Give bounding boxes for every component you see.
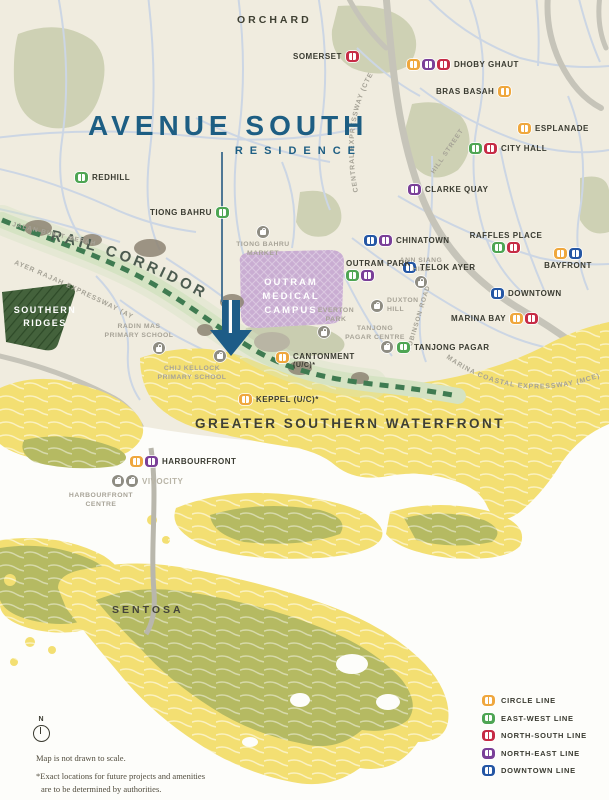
map-notes: Map is not drawn to scale. *Exact locati… (36, 752, 205, 795)
north-east-line-icon (422, 59, 435, 70)
north-south-line-icon (507, 242, 520, 253)
poi-label-line1: DUXTON (387, 297, 419, 306)
north-south-line-icon (484, 143, 497, 154)
legend-item-circle-line: CIRCLE LINE (482, 695, 587, 706)
legend-item-north-south-line: NORTH-SOUTH LINE (482, 730, 587, 741)
note-disclaimer-line2: are to be determined by authorities. (41, 783, 205, 796)
station-tiong-bahru: TIONG BAHRU (150, 207, 229, 218)
station-note: (U/C)* (293, 362, 355, 370)
poi-label-line2: PARK (326, 315, 347, 324)
poi-label-line1: TIONG BAHRU (236, 240, 289, 249)
station-label: CANTONMENT (293, 352, 355, 362)
circle-line-icon (407, 59, 420, 70)
station-label: MARINA BAY (451, 314, 506, 323)
area-southern-ridges: SOUTHERN RIDGES (12, 304, 78, 329)
east-west-line-icon (482, 713, 495, 724)
line-icons (554, 248, 582, 259)
outram-line1: OUTRAM (246, 276, 336, 290)
station-label: HARBOURFRONT (162, 457, 236, 466)
north-south-line-icon (525, 313, 538, 324)
east-west-line-icon (346, 270, 359, 281)
area-gsw: GREATER SOUTHERN WATERFRONT (195, 416, 475, 431)
station-label: TIONG BAHRU (150, 208, 212, 217)
project-title: AVENUE SOUTH RESIDENCE (88, 110, 364, 157)
station-downtown: DOWNTOWN (491, 288, 562, 299)
poi-label-line1: TANJONG (342, 324, 408, 333)
north-east-line-icon (145, 456, 158, 467)
station-redhill: REDHILL (75, 172, 130, 183)
station-label: CHINATOWN (396, 236, 450, 245)
station-label: BAYFRONT (544, 261, 592, 270)
southern-ridges-line1: SOUTHERN (12, 304, 78, 317)
area-orchard: ORCHARD (237, 14, 312, 26)
station-label: DOWNTOWN (508, 289, 562, 298)
poi-label-line2: PRIMARY SCHOOL (158, 373, 227, 382)
poi-label-line2: HILL (387, 306, 419, 315)
circle-line-icon (510, 313, 523, 324)
poi-label-line1: RADIN MAS (117, 322, 160, 331)
north-east-line-icon (482, 748, 495, 759)
station-somerset: SOMERSET (293, 51, 359, 62)
poi-label-line1: ANN SIANG (400, 256, 443, 265)
station-label: BRAS BASAH (436, 87, 494, 96)
line-icons (510, 313, 538, 324)
north-south-line-icon (437, 59, 450, 70)
north-south-line-icon (482, 730, 495, 741)
legend-item-north-east-line: NORTH-EAST LINE (482, 748, 587, 759)
line-icons (364, 235, 392, 246)
station-label: DHOBY GHAUT (454, 60, 519, 69)
east-west-line-icon (397, 342, 410, 353)
circle-line-icon (554, 248, 567, 259)
school-icon (214, 350, 226, 362)
heritage-icon (318, 326, 330, 338)
legend-label: CIRCLE LINE (501, 696, 556, 705)
poi-chij-kellock-school: CHIJ KELLOCK PRIMARY SCHOOL (150, 350, 234, 382)
station-label: SOMERSET (293, 52, 342, 61)
station-tanjong-pagar: TANJONG PAGAR (381, 341, 490, 353)
poi-harbourfront-centre: HARBOURFRONT CENTRE (68, 491, 134, 509)
compass-icon (33, 725, 50, 742)
circle-line-icon (482, 695, 495, 706)
note-scale: Map is not drawn to scale. (36, 752, 205, 765)
poi-duxton-hill: DUXTON HILL (371, 297, 419, 315)
station-dhoby-ghaut: DHOBY GHAUT (407, 59, 519, 70)
legend-item-downtown-line: DOWNTOWN LINE (482, 765, 587, 776)
poi-tiong-bahru-market: TIONG BAHRU MARKET (232, 226, 294, 258)
circle-line-icon (130, 456, 143, 467)
legend-label: DOWNTOWN LINE (501, 766, 576, 775)
station-harbourfront: HARBOURFRONT (130, 456, 236, 467)
legend-label: EAST-WEST LINE (501, 714, 574, 723)
poi-label-line2: HILL (412, 265, 429, 274)
project-title-main: AVENUE SOUTH (88, 110, 364, 142)
heritage-icon (415, 276, 427, 288)
north-south-line-icon (346, 51, 359, 62)
downtown-line-icon (364, 235, 377, 246)
poi-label: VIVOCITY (142, 477, 183, 486)
station-chinatown: CHINATOWN (364, 235, 450, 246)
outram-line2: MEDICAL (246, 290, 336, 304)
station-label: REDHILL (92, 173, 130, 182)
legend-label: NORTH-EAST LINE (501, 749, 580, 758)
poi-ann-siang-hill: ANN SIANG HILL (396, 256, 446, 288)
pointer-line (221, 152, 223, 302)
compass: N (30, 716, 52, 742)
poi-label-line1: EVERTON (318, 306, 354, 315)
station-label: TANJONG PAGAR (414, 343, 490, 352)
line-icons (346, 270, 374, 281)
mall-icon (112, 475, 124, 487)
east-west-line-icon (492, 242, 505, 253)
north-east-line-icon (379, 235, 392, 246)
station-label-stack: CANTONMENT (U/C)* (293, 352, 355, 370)
circle-line-icon (239, 394, 252, 405)
line-icons (492, 242, 520, 253)
station-marina-bay: MARINA BAY (451, 313, 538, 324)
station-label: ESPLANADE (535, 124, 589, 133)
poi-label-line1: HARBOURFRONT (68, 491, 134, 500)
poi-label-line2: MARKET (247, 249, 279, 258)
station-cantonment: CANTONMENT (U/C)* (276, 352, 355, 370)
poi-label-line2: CENTRE (68, 500, 134, 509)
station-esplanade: ESPLANADE (518, 123, 589, 134)
poi-label-line2: PAGAR CENTRE (342, 333, 408, 342)
southern-ridges-line2: RIDGES (12, 317, 78, 330)
downtown-line-icon (569, 248, 582, 259)
poi-tanjong-pagar-centre: TANJONG PAGAR CENTRE (342, 324, 408, 342)
north-east-line-icon (408, 184, 421, 195)
note-disclaimer-line1: *Exact locations for future projects and… (36, 770, 205, 783)
station-bayfront: BAYFRONT (540, 248, 596, 270)
east-west-line-icon (75, 172, 88, 183)
legend: CIRCLE LINE EAST-WEST LINE NORTH-SOUTH L… (482, 695, 587, 776)
singapore-location-map: RAIL CORRIDOR CENTRAL EXPRESSWAY (CTE) A… (0, 0, 609, 800)
line-icons (407, 59, 450, 70)
compass-north-label: N (30, 716, 52, 723)
station-raffles-place: RAFFLES PLACE (463, 231, 549, 253)
line-icons (130, 456, 158, 467)
station-label: CLARKE QUAY (425, 185, 488, 194)
line-icons (469, 143, 497, 154)
north-east-line-icon (361, 270, 374, 281)
station-label: CITY HALL (501, 144, 547, 153)
downtown-line-icon (482, 765, 495, 776)
project-title-sub: RESIDENCE (88, 145, 364, 157)
station-label: KEPPEL (U/C)* (256, 395, 319, 404)
east-west-line-icon (469, 143, 482, 154)
mall-icon (126, 475, 138, 487)
legend-label: NORTH-SOUTH LINE (501, 731, 587, 740)
legend-item-east-west-line: EAST-WEST LINE (482, 713, 587, 724)
mall-icon (381, 341, 393, 353)
station-clarke-quay: CLARKE QUAY (408, 184, 488, 195)
poi-icons (112, 475, 138, 487)
area-sentosa: SENTOSA (112, 604, 184, 616)
market-icon (257, 226, 269, 238)
station-bras-basah: BRAS BASAH (436, 86, 511, 97)
east-west-line-icon (216, 207, 229, 218)
station-keppel: KEPPEL (U/C)* (239, 394, 319, 405)
downtown-line-icon (491, 288, 504, 299)
poi-vivocity: VIVOCITY (112, 475, 183, 487)
poi-label-line2: PRIMARY SCHOOL (105, 331, 174, 340)
station-city-hall: CITY HALL (469, 143, 547, 154)
heritage-icon (371, 300, 383, 312)
station-label: RAFFLES PLACE (470, 231, 543, 240)
circle-line-icon (498, 86, 511, 97)
circle-line-icon (518, 123, 531, 134)
poi-label-line1: CHIJ KELLOCK (164, 364, 220, 373)
circle-line-icon (276, 352, 289, 363)
